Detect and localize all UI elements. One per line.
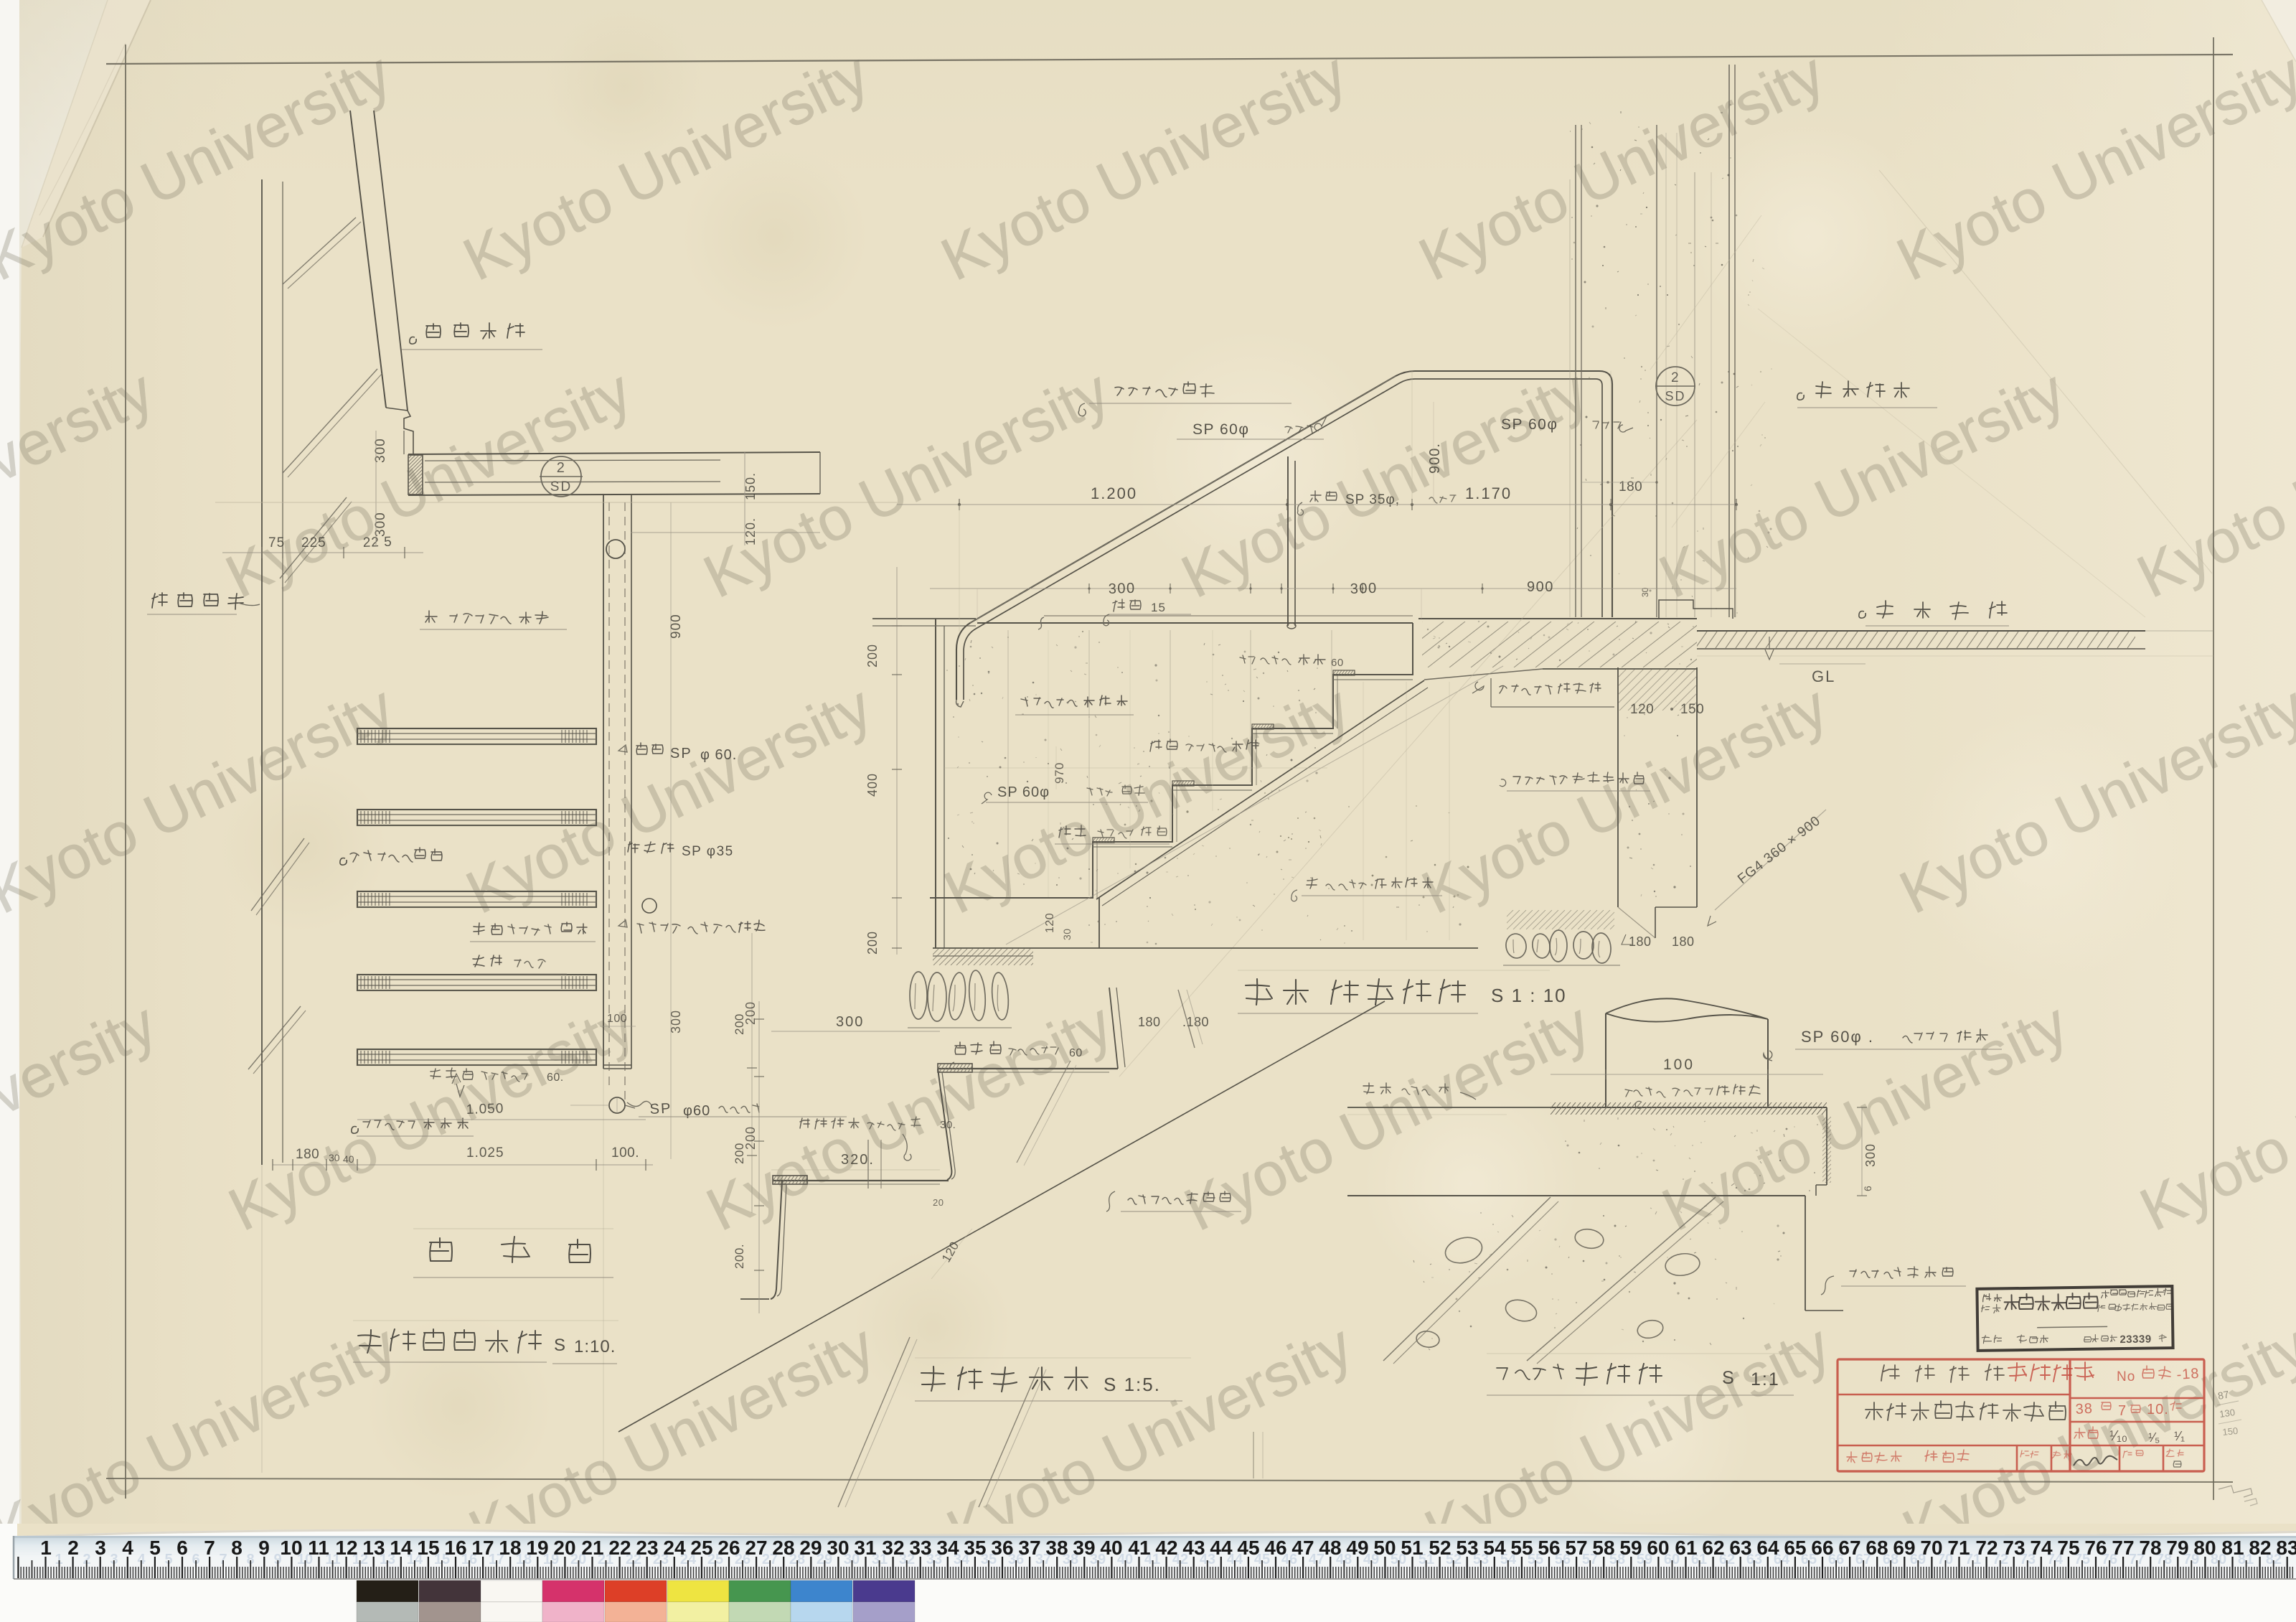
svg-text:200: 200 [865,931,880,955]
svg-text:SP: SP [649,1100,672,1117]
svg-text:120.: 120. [743,517,758,545]
svg-text:76: 76 [2084,1537,2107,1559]
svg-text:20: 20 [933,1197,944,1208]
svg-text:1.050: 1.050 [466,1101,504,1117]
svg-text:66: 66 [1811,1537,1833,1559]
svg-text:900.: 900. [1427,443,1443,474]
svg-text:SP 60φ: SP 60φ [1192,421,1249,438]
svg-text:50: 50 [1373,1537,1396,1559]
svg-text:7: 7 [2118,1403,2127,1419]
svg-text:15: 15 [417,1537,439,1559]
svg-text:SP φ35: SP φ35 [682,844,734,859]
svg-text:60: 60 [1647,1537,1669,1559]
svg-text:No: No [2117,1369,2135,1384]
svg-text:36: 36 [991,1537,1013,1559]
svg-text:180: 180 [1672,934,1695,949]
svg-text:67: 67 [1838,1537,1860,1559]
svg-text:S 1:5.: S 1:5. [1104,1374,1161,1395]
svg-text:35: 35 [964,1537,986,1559]
svg-text:57: 57 [1565,1537,1587,1559]
svg-text:82: 82 [2249,1537,2271,1559]
svg-text:83: 83 [2276,1537,2296,1559]
svg-text:20: 20 [553,1537,575,1559]
svg-text:900: 900 [1527,579,1554,595]
svg-text:21: 21 [581,1537,603,1559]
svg-text:180: 180 [296,1147,319,1162]
svg-text:180: 180 [1629,934,1652,949]
svg-text:74: 74 [2030,1537,2053,1559]
svg-text:6: 6 [177,1537,188,1559]
svg-text:φ 60.: φ 60. [700,747,737,763]
svg-text:4: 4 [122,1537,133,1559]
svg-text:200: 200 [733,1143,746,1164]
svg-text:22: 22 [608,1537,631,1559]
svg-text:300: 300 [669,1010,683,1033]
svg-text:40: 40 [343,1153,354,1165]
svg-text:56: 56 [1538,1537,1560,1559]
svg-text:130: 130 [2219,1407,2236,1420]
svg-text:180: 180 [1619,479,1642,494]
svg-text:300: 300 [373,438,388,463]
svg-text:13: 13 [362,1537,385,1559]
svg-text:3: 3 [95,1537,106,1559]
svg-text:23: 23 [636,1537,658,1559]
svg-text:38: 38 [1045,1537,1068,1559]
svg-text:320.: 320. [841,1152,875,1168]
svg-text:150: 150 [2222,1425,2239,1438]
svg-text:10: 10 [280,1537,302,1559]
svg-text:43: 43 [1182,1537,1205,1559]
svg-text:100.: 100. [611,1145,639,1161]
svg-text:71: 71 [1947,1537,1970,1559]
svg-text:79: 79 [2166,1537,2188,1559]
svg-text:31: 31 [854,1537,876,1559]
svg-text:200: 200 [865,644,880,667]
svg-text:46: 46 [1264,1537,1286,1559]
svg-text:SP 60φ: SP 60φ [1501,416,1558,433]
svg-text:24: 24 [663,1537,686,1559]
svg-text:42: 42 [1155,1537,1177,1559]
svg-text:¹⁄₁: ¹⁄₁ [2174,1429,2185,1443]
svg-text:150: 150 [1680,702,1704,717]
svg-text:970: 970 [1053,762,1066,784]
svg-text:120: 120 [1630,702,1654,717]
svg-text:SD: SD [1665,389,1685,403]
svg-text:11: 11 [308,1537,329,1559]
svg-text:64: 64 [1756,1537,1779,1559]
svg-text:39: 39 [1073,1537,1095,1559]
svg-text:23339: 23339 [2119,1333,2151,1346]
svg-text:75: 75 [268,535,285,550]
svg-text:5: 5 [149,1537,161,1559]
svg-text:¹⁄₁₀: ¹⁄₁₀ [2109,1428,2127,1444]
svg-text:17: 17 [471,1537,494,1559]
svg-text:300: 300 [1108,581,1136,597]
svg-text:53: 53 [1456,1537,1478,1559]
svg-text:59: 59 [1619,1537,1642,1559]
svg-text:52: 52 [1429,1537,1451,1559]
svg-text:54: 54 [1483,1537,1506,1559]
svg-text:26: 26 [717,1537,740,1559]
svg-text:37: 37 [1018,1537,1040,1559]
svg-text:300: 300 [836,1014,864,1030]
svg-text:300: 300 [1350,581,1378,597]
svg-text:72: 72 [1975,1537,1998,1559]
svg-text:55: 55 [1510,1537,1533,1559]
svg-text:150.: 150. [743,472,758,500]
svg-text:60: 60 [1069,1047,1083,1059]
svg-text:16: 16 [444,1537,466,1559]
svg-text:1.025: 1.025 [466,1145,504,1161]
svg-text:8: 8 [231,1537,243,1559]
svg-text:28: 28 [772,1537,794,1559]
svg-text:120: 120 [1044,913,1056,933]
svg-text:62: 62 [1702,1537,1724,1559]
svg-text:41: 41 [1128,1537,1150,1559]
svg-text:75: 75 [2057,1537,2079,1559]
svg-text:14: 14 [390,1537,413,1559]
svg-text:GL: GL [1812,667,1835,685]
svg-text:15: 15 [1151,601,1166,614]
svg-text:68: 68 [1865,1537,1888,1559]
svg-text:69: 69 [1893,1537,1915,1559]
svg-text:65: 65 [1784,1537,1806,1559]
svg-text:SP 60φ .: SP 60φ . [1801,1028,1874,1046]
svg-text:18: 18 [499,1537,521,1559]
svg-text:6: 6 [1862,1186,1873,1191]
svg-text:51: 51 [1401,1537,1423,1559]
svg-text:30: 30 [827,1537,849,1559]
svg-text:77: 77 [2112,1537,2134,1559]
svg-text:400: 400 [865,773,880,797]
svg-text:SP 60φ: SP 60φ [997,784,1050,800]
svg-text:SP 35φ,: SP 35φ, [1345,492,1400,507]
svg-text:38: 38 [2075,1401,2093,1417]
svg-text:30.: 30. [940,1119,956,1131]
svg-text:1:1: 1:1 [1751,1369,1780,1389]
svg-text:30: 30 [1061,928,1073,940]
svg-text:63: 63 [1729,1537,1751,1559]
svg-text:2: 2 [557,460,566,476]
svg-text:48: 48 [1319,1537,1341,1559]
svg-text:27: 27 [745,1537,767,1559]
svg-text:30: 30 [329,1152,340,1163]
svg-text:1.170: 1.170 [1465,484,1512,502]
svg-text:47: 47 [1291,1537,1314,1559]
svg-text:58: 58 [1592,1537,1614,1559]
svg-text:1.200: 1.200 [1091,484,1137,502]
svg-text:34: 34 [936,1537,959,1559]
svg-text:180: 180 [1138,1015,1161,1029]
svg-text:49: 49 [1346,1537,1368,1559]
svg-text:70: 70 [1920,1537,1942,1559]
svg-text:1: 1 [40,1537,52,1559]
svg-text:100: 100 [607,1013,627,1025]
svg-text:S 1 : 10: S 1 : 10 [1491,985,1567,1006]
svg-text:SD: SD [550,479,572,494]
svg-text:2: 2 [67,1537,79,1559]
svg-text:300: 300 [1863,1143,1878,1167]
svg-text:¹⁄₅: ¹⁄₅ [2148,1430,2160,1445]
svg-text:100: 100 [1663,1056,1695,1073]
svg-text:200.: 200. [733,1244,746,1269]
svg-text:73: 73 [2003,1537,2025,1559]
svg-text:25: 25 [690,1537,712,1559]
svg-text:1:10.: 1:10. [574,1337,616,1356]
svg-text:300: 300 [373,512,388,537]
svg-text:45: 45 [1237,1537,1259,1559]
svg-text:10.: 10. [2147,1402,2169,1417]
svg-text:81: 81 [2221,1537,2244,1559]
svg-text:9: 9 [258,1537,270,1559]
svg-text:78: 78 [2139,1537,2161,1559]
svg-text:19: 19 [526,1537,548,1559]
svg-text:87: 87 [2217,1388,2230,1401]
svg-text:SP: SP [670,746,692,761]
svg-text:12: 12 [335,1537,357,1559]
svg-text:S: S [1722,1368,1735,1388]
svg-text:7: 7 [204,1537,215,1559]
svg-text:60: 60 [1331,657,1344,669]
svg-text:225: 225 [301,535,326,550]
svg-text:40: 40 [1100,1537,1122,1559]
svg-text:2: 2 [1671,370,1680,385]
svg-text:32: 32 [882,1537,904,1559]
svg-text:33: 33 [909,1537,931,1559]
svg-text:44: 44 [1210,1537,1233,1559]
svg-text:900: 900 [669,614,684,639]
svg-text:80: 80 [2193,1537,2216,1559]
svg-text:S: S [554,1336,566,1355]
svg-text:-18: -18 [2176,1366,2200,1383]
svg-text:200: 200 [733,1013,746,1035]
svg-text:29: 29 [799,1537,822,1559]
svg-text:60.: 60. [547,1072,564,1084]
svg-text:61: 61 [1675,1537,1697,1559]
